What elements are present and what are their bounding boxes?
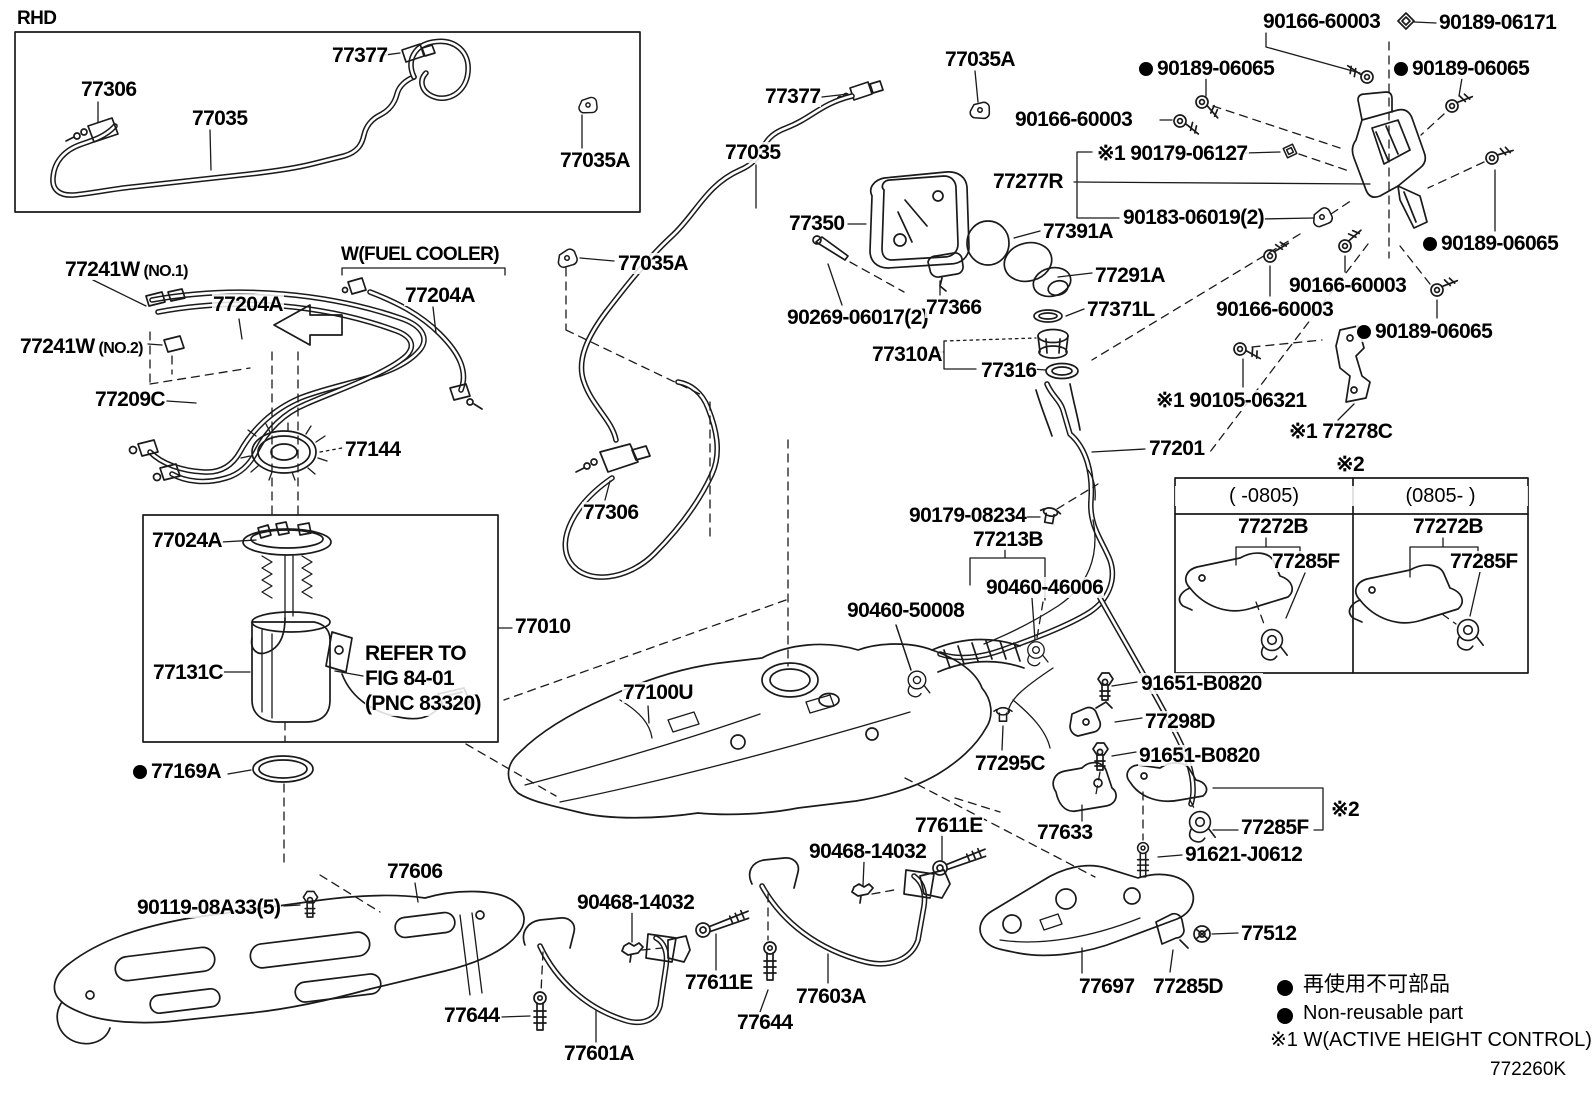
part-label-90166-60003-b: 90166-60003 [1014,109,1133,130]
non-reusable-dot-icon [1394,62,1408,76]
part-label-77611E-r: 77611E [914,815,984,836]
non-reusable-dot-icon [133,765,147,779]
non-reusable-dot-icon [1423,237,1437,251]
non-reusable-dot-icon [1357,325,1371,339]
part-label-77601A: 77601A [563,1043,635,1064]
part-label-90269-06017: 90269-06017(2) [786,307,929,328]
part-label-90179-08234: 90179-08234 [908,505,1027,526]
part-label-77391A: 77391A [1042,221,1114,242]
part-label-90189-06065-c: 90189-06065 [1422,233,1559,254]
art-filler-door-assembly [813,172,1092,379]
part-label-77306-a: 77306 [80,79,137,100]
parts-diagram-page: 77306770357737777035A7737777035A77035770… [0,0,1592,1099]
part-label-77169A: 77169A [132,761,222,782]
part-label-77644-l: 77644 [443,1005,500,1026]
part-label-77285F-main: 77285F [1240,817,1310,838]
legend-non-reusable-jp: 再使用不可部品 [1303,974,1450,995]
part-label-77697: 77697 [1078,976,1135,997]
diagram-artwork [0,0,1592,1099]
part-label-77035-b: 77035 [724,142,781,163]
table-part-77272B-late: 77272B [1413,516,1483,537]
part-label-77277R: 77277R [992,171,1064,192]
part-label-90189-06065-b: 90189-06065 [1393,58,1530,79]
fuel-cooler-note: W(FUEL COOLER) [341,245,499,264]
non-reusable-dot-icon [1139,62,1153,76]
part-label-90460-50008: 90460-50008 [846,600,965,621]
part-label-77035A-b: 77035A [944,49,1016,70]
part-label-90119-08A33: 90119-08A33(5) [136,897,281,918]
part-label-77316: 77316 [980,360,1037,381]
part-label-90105-06321: ※1 90105-06321 [1155,390,1308,411]
part-label-77241W-1: 77241W (NO.1) [64,259,189,280]
part-label-91651-B0820-a: 91651-B0820 [1140,673,1263,694]
part-label-note2-main: ※2 [1330,799,1360,820]
part-label-77213B: 77213B [972,529,1044,550]
part-label-77144: 77144 [344,439,401,460]
legend-note-active-height: ※1 W(ACTIVE HEIGHT CONTROL) [1270,1030,1592,1050]
part-label-77291A: 77291A [1094,265,1166,286]
part-label-77606: 77606 [386,861,443,882]
part-label-77377-a: 77377 [331,45,388,66]
part-label-77204A-a: 77204A [212,294,284,315]
part-label-77603A: 77603A [795,986,867,1007]
part-label-90166-60003-d: 90166-60003 [1215,299,1334,320]
part-label-77201: 77201 [1148,438,1205,459]
part-label-77377-b: 77377 [764,86,821,107]
part-label-77131C: 77131C [152,662,224,683]
part-label-77035A-a: 77035A [559,150,631,171]
part-label-77310A: 77310A [871,344,943,365]
part-label-90468-14032-l: 90468-14032 [576,892,695,913]
legend-dot-en [1277,1008,1293,1024]
part-label-90460-46006: 90460-46006 [985,577,1104,598]
legend-non-reusable-en: Non-reusable part [1303,1003,1463,1023]
part-label-90189-06065-d: 90189-06065 [1356,321,1493,342]
part-label-91651-B0820-b: 91651-B0820 [1138,745,1261,766]
figure-code: 772260K [1490,1060,1566,1079]
table-note: ※2 [1336,454,1364,475]
rhd-inset-title: RHD [17,9,56,28]
part-label-77100U: 77100U [622,682,694,703]
part-label-77306-b: 77306 [582,502,639,523]
part-label-90166-60003-c: 90166-60003 [1288,275,1407,296]
table-part-77285F-late: 77285F [1450,551,1518,572]
part-label-77010: 77010 [514,616,571,637]
part-label-77035-a: 77035 [191,108,248,129]
refer-note: REFER TO FIG 84-01 (PNC 83320) [365,641,481,716]
art-rhd-inset [15,32,640,212]
part-label-77371L: 77371L [1086,299,1156,320]
part-label-77633: 77633 [1036,822,1093,843]
part-label-77241W-2: 77241W (NO.2) [19,336,144,357]
part-label-90179-06127: ※1 90179-06127 [1096,143,1249,164]
legend-dot-jp [1277,980,1293,996]
part-label-77366: 77366 [925,297,982,318]
table-part-77272B-early: 77272B [1238,516,1308,537]
part-label-90183-06019: 90183-06019(2) [1122,207,1265,228]
part-label-77644-c: 77644 [736,1012,793,1033]
table-header-early: ( -0805) [1175,486,1353,506]
part-label-90189-06171: 90189-06171 [1438,12,1557,33]
part-label-90189-06065-a: 90189-06065 [1138,58,1275,79]
part-label-77204A-b: 77204A [404,285,476,306]
table-part-77285F-early: 77285F [1272,551,1340,572]
part-label-77278C: ※1 77278C [1288,421,1393,442]
part-label-77512: 77512 [1240,923,1297,944]
part-label-77024A: 77024A [151,530,223,551]
art-variant-table [1175,478,1528,673]
part-label-91621-J0612: 91621-J0612 [1184,844,1303,865]
part-label-77285D: 77285D [1152,976,1224,997]
part-label-77611E-l: 77611E [684,972,754,993]
part-label-77298D: 77298D [1144,711,1216,732]
part-label-77209C: 77209C [94,389,166,410]
part-label-77035A-c: 77035A [617,253,689,274]
art-rear-bracket [980,866,1238,973]
part-label-90166-60003-a: 90166-60003 [1262,11,1381,32]
part-label-77295C: 77295C [974,753,1046,774]
part-label-77350: 77350 [788,213,845,234]
table-header-late: (0805- ) [1353,486,1528,506]
part-label-90468-14032-r: 90468-14032 [808,841,927,862]
